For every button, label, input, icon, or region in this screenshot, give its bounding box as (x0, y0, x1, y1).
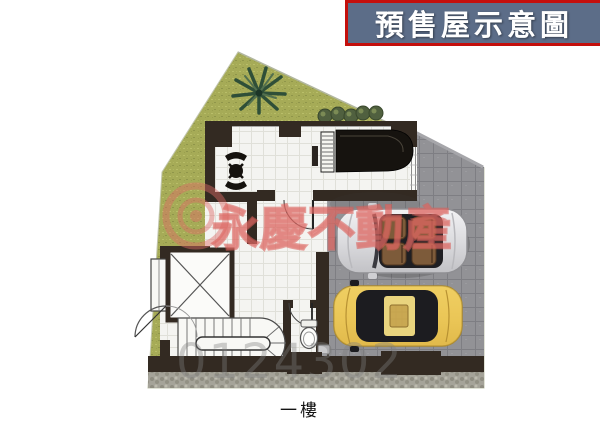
title-box: 預售屋示意圖 (345, 0, 600, 46)
floorplan-drawing (0, 0, 600, 424)
yellow-car-icon (334, 280, 462, 352)
floor-label: 一樓 (0, 396, 600, 421)
page-title: 預售屋示意圖 (375, 2, 573, 44)
toilet-icon (301, 320, 318, 349)
bush-icon (331, 107, 345, 121)
bush-icon (356, 106, 370, 120)
grand-piano-icon (312, 130, 413, 172)
bush-icon (318, 109, 332, 123)
floorplan-page: 永慶不動產 0124302 預售屋示意圖 一樓 (0, 0, 600, 424)
bush-icon (369, 106, 383, 120)
